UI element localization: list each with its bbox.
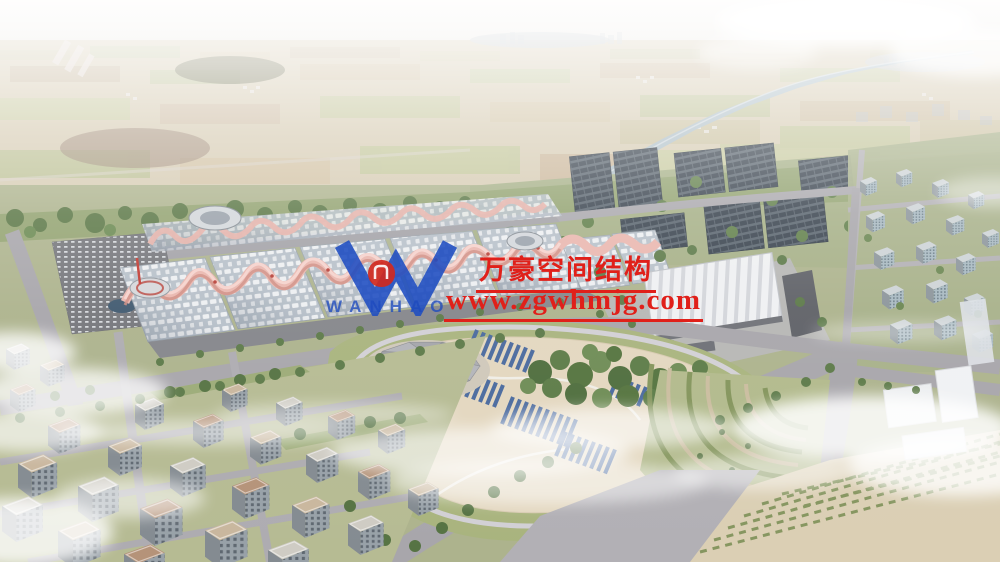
aerial-rendering-screenshot: WANHAO 万豪空间结构 www.zgwhmjg.com: [0, 0, 1000, 562]
rendered-scene: [0, 0, 1000, 562]
